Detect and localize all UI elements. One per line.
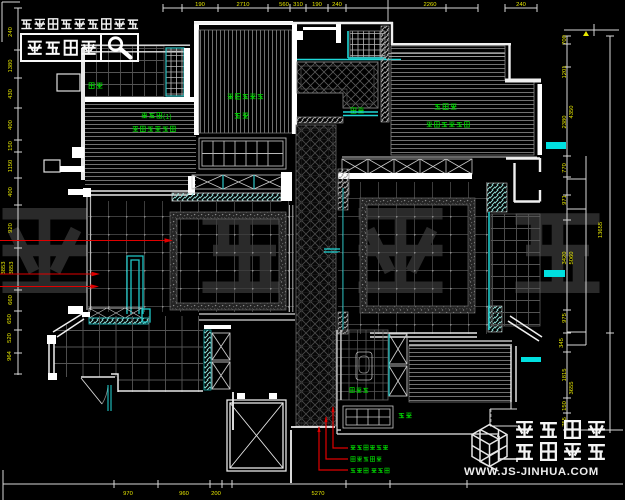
svg-text:920: 920 bbox=[8, 223, 14, 233]
svg-text:1380: 1380 bbox=[8, 60, 14, 73]
svg-text:650: 650 bbox=[7, 314, 13, 324]
svg-text:WWW.JS-JINHUA.COM: WWW.JS-JINHUA.COM bbox=[464, 466, 599, 478]
svg-text:400: 400 bbox=[8, 120, 14, 130]
svg-text:1150: 1150 bbox=[8, 160, 14, 172]
svg-text:150: 150 bbox=[8, 141, 14, 151]
svg-text:150: 150 bbox=[562, 401, 568, 411]
svg-text:2380: 2380 bbox=[562, 116, 568, 129]
svg-text:1815: 1815 bbox=[562, 369, 568, 382]
svg-text:3655: 3655 bbox=[569, 382, 575, 395]
svg-text:4350: 4350 bbox=[569, 106, 575, 119]
svg-text:770: 770 bbox=[562, 163, 568, 173]
svg-text:13655: 13655 bbox=[598, 222, 604, 238]
svg-text:400: 400 bbox=[8, 187, 14, 197]
svg-text:3420: 3420 bbox=[562, 252, 568, 265]
svg-text:560: 560 bbox=[279, 2, 289, 8]
svg-text:660: 660 bbox=[8, 295, 14, 305]
svg-text:240: 240 bbox=[516, 2, 526, 8]
svg-text:960: 960 bbox=[179, 491, 189, 497]
svg-text:190: 190 bbox=[195, 2, 205, 8]
svg-text:240: 240 bbox=[8, 27, 14, 37]
svg-text:3853: 3853 bbox=[1, 262, 7, 275]
svg-text:5060: 5060 bbox=[569, 252, 575, 265]
svg-text:975: 975 bbox=[562, 313, 568, 323]
svg-text:964: 964 bbox=[7, 350, 13, 360]
svg-text:2710: 2710 bbox=[237, 2, 250, 8]
svg-text:971: 971 bbox=[562, 195, 568, 205]
svg-text:345: 345 bbox=[559, 338, 565, 348]
svg-text:2260: 2260 bbox=[424, 2, 437, 8]
svg-text:5270: 5270 bbox=[312, 491, 325, 497]
svg-text:3853: 3853 bbox=[9, 262, 15, 275]
svg-text:(1): (1) bbox=[163, 114, 172, 121]
svg-text:310: 310 bbox=[293, 2, 303, 8]
svg-text:190: 190 bbox=[312, 2, 322, 8]
svg-text:1201: 1201 bbox=[562, 66, 568, 79]
svg-text:970: 970 bbox=[123, 491, 133, 497]
svg-text:520: 520 bbox=[7, 333, 13, 343]
svg-text:240: 240 bbox=[332, 2, 342, 8]
svg-text:430: 430 bbox=[8, 89, 14, 99]
svg-text:200: 200 bbox=[211, 491, 221, 497]
svg-text:700: 700 bbox=[562, 35, 568, 45]
